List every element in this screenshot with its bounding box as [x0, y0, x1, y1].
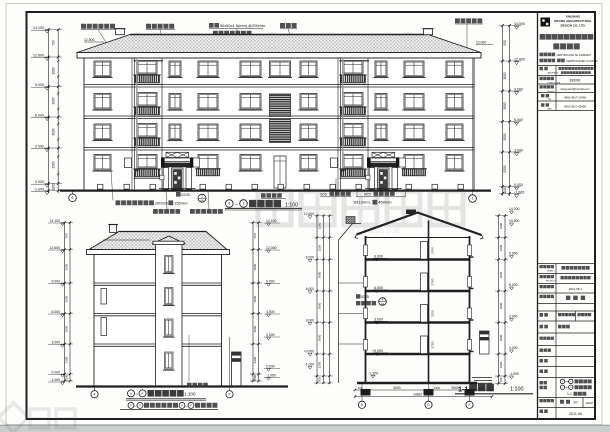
svg-text:PROJECT: PROJECT	[546, 281, 556, 283]
svg-text:9.000: 9.000	[52, 280, 61, 284]
svg-text:9.000: 9.000	[514, 88, 523, 92]
svg-text:3.000: 3.000	[514, 149, 523, 153]
svg-text:1: 1	[472, 197, 474, 201]
svg-text:CERTIFICATE No.A1002627: CERTIFICATE No.A1002627	[557, 53, 592, 57]
svg-text:3000: 3000	[503, 102, 507, 109]
svg-text:c o 1 8 8 . c o m: c o 1 8 8 . c o m	[343, 226, 400, 235]
svg-text:1000: 1000	[64, 374, 68, 381]
svg-text:700: 700	[499, 377, 503, 382]
svg-text:6.000: 6.000	[514, 118, 523, 122]
svg-text:3000: 3000	[503, 72, 507, 79]
svg-text:4.500: 4.500	[266, 310, 275, 314]
svg-text:1000: 1000	[52, 183, 56, 190]
svg-text:~: ~	[134, 404, 136, 408]
svg-text:-1.000: -1.000	[50, 378, 60, 382]
svg-text:2700: 2700	[431, 278, 435, 285]
svg-text:FAX: FAX	[548, 107, 553, 110]
svg-text:2200: 2200	[499, 222, 503, 229]
svg-text:-1.000: -1.000	[266, 374, 276, 378]
svg-text:DESIGN CO. LTD.: DESIGN CO. LTD.	[561, 24, 586, 28]
svg-text:3000: 3000	[52, 97, 56, 104]
svg-text:CERTIFICATED CLASS A: CERTIFICATED CLASS A	[566, 59, 597, 63]
svg-text:12.600: 12.600	[50, 246, 60, 250]
svg-text:2700: 2700	[431, 341, 435, 348]
svg-text:10: 10	[573, 400, 578, 405]
svg-text:12.000: 12.000	[514, 58, 525, 62]
svg-text:12.600: 12.600	[33, 54, 44, 58]
svg-text:3000: 3000	[64, 263, 68, 270]
svg-text:F: F	[469, 403, 471, 407]
svg-text:E-mail: E-mail	[548, 91, 555, 93]
svg-text:1-1: 1-1	[567, 392, 572, 396]
svg-text:-1.000: -1.000	[514, 191, 524, 195]
svg-text:0.000: 0.000	[514, 183, 523, 187]
svg-text:3000: 3000	[64, 295, 68, 302]
svg-text:-1.000: -1.000	[509, 372, 519, 376]
svg-text:0991-4517-65430: 0991-4517-65430	[564, 105, 587, 109]
svg-text:~: ~	[185, 404, 187, 408]
svg-text:2200: 2200	[499, 361, 503, 368]
svg-text:3000: 3000	[253, 263, 257, 270]
svg-text:6000: 6000	[393, 386, 400, 390]
svg-text:3300: 3300	[64, 356, 68, 363]
svg-text:fangyuan2@hotmail.com: fangyuan2@hotmail.com	[561, 87, 590, 91]
svg-text:14.100: 14.100	[50, 219, 60, 223]
svg-text:PLAN: PLAN	[547, 270, 553, 273]
svg-text:2200: 2200	[317, 244, 321, 251]
svg-text:3.000: 3.000	[306, 319, 314, 323]
svg-text:12.800: 12.800	[84, 38, 94, 42]
svg-text:3000: 3000	[253, 295, 257, 302]
svg-text:SIFANG ARCHITECTURAL: SIFANG ARCHITECTURAL	[554, 19, 592, 23]
svg-text:A: A	[139, 403, 141, 407]
svg-text:12.000: 12.000	[266, 246, 276, 250]
svg-text:2200: 2200	[317, 361, 321, 368]
svg-text:830000: 830000	[570, 78, 581, 82]
svg-text:9.000: 9.000	[306, 256, 314, 260]
svg-text:3000: 3000	[52, 128, 56, 135]
svg-text:50x50x1.5(mm),@200mm: 50x50x1.5(mm),@200mm	[220, 23, 265, 28]
svg-text:F: F	[142, 392, 144, 396]
svg-text:3000: 3000	[499, 271, 503, 278]
svg-text:2700: 2700	[431, 310, 435, 317]
svg-text:3.000: 3.000	[266, 333, 275, 337]
svg-text:6.000: 6.000	[509, 283, 518, 287]
svg-text:02J5: 02J5	[181, 192, 190, 197]
svg-text:1:100: 1:100	[510, 387, 524, 393]
svg-text:6.000: 6.000	[52, 310, 61, 314]
svg-text:A: A	[181, 403, 183, 407]
svg-text:ADDRESS: ADDRESS	[548, 72, 559, 75]
svg-text:13.800: 13.800	[509, 219, 519, 223]
svg-text:0.000: 0.000	[266, 365, 275, 369]
svg-text:02J5: 02J5	[361, 295, 369, 299]
svg-text:900: 900	[503, 40, 507, 46]
svg-text:6.000: 6.000	[374, 286, 383, 290]
svg-text:6: 6	[72, 196, 74, 200]
svg-text:700: 700	[64, 233, 68, 238]
svg-text:9.000: 9.000	[374, 255, 383, 259]
svg-text:POST CODE: POST CODE	[548, 82, 561, 84]
svg-text:3000: 3000	[317, 334, 321, 341]
svg-text:+0.000: +0.000	[304, 350, 314, 354]
svg-text:1000: 1000	[503, 186, 507, 193]
svg-text:12.000: 12.000	[476, 41, 486, 45]
svg-text:3000: 3000	[64, 325, 68, 332]
svg-text:64: 64	[201, 199, 204, 203]
svg-text:100mm,: 100mm,	[155, 201, 169, 206]
svg-text:0991-4517-23456: 0991-4517-23456	[564, 96, 587, 100]
svg-text:1: 1	[243, 202, 245, 206]
svg-text:0.000: 0.000	[509, 346, 518, 350]
svg-text:3300: 3300	[253, 356, 257, 363]
svg-text:0.000: 0.000	[52, 371, 61, 375]
svg-text:3.000: 3.000	[35, 145, 44, 149]
svg-text:700: 700	[253, 233, 257, 238]
svg-text:3.000: 3.000	[52, 341, 61, 345]
svg-text:700: 700	[52, 40, 56, 46]
svg-text:3000: 3000	[499, 302, 503, 309]
svg-text:2200: 2200	[499, 244, 503, 251]
svg-text:3000: 3000	[317, 302, 321, 309]
svg-text:150mm: 150mm	[174, 201, 188, 206]
svg-text:0.000: 0.000	[35, 180, 44, 184]
svg-text:3000: 3000	[317, 271, 321, 278]
svg-text:3300: 3300	[503, 165, 507, 172]
svg-text:3.000: 3.000	[374, 318, 383, 322]
svg-text:~: ~	[235, 202, 238, 207]
svg-text:9.000: 9.000	[35, 83, 44, 87]
svg-text:3300: 3300	[52, 161, 56, 168]
svg-text:-1.000: -1.000	[34, 188, 44, 192]
svg-text:6: 6	[228, 202, 230, 206]
svg-text:6.000: 6.000	[306, 287, 314, 291]
svg-text:700: 700	[317, 377, 321, 382]
svg-text:F: F	[229, 392, 231, 396]
svg-text:2700: 2700	[431, 247, 435, 254]
svg-text:3000: 3000	[253, 325, 257, 332]
svg-text:9.000: 9.000	[266, 280, 275, 284]
svg-text:19/22: 19/22	[585, 401, 593, 405]
svg-text:3.000: 3.000	[509, 315, 518, 319]
svg-text:2011-08-1: 2011-08-1	[569, 287, 583, 291]
svg-text:1-1: 1-1	[458, 384, 468, 393]
svg-text:14300: 14300	[413, 392, 422, 396]
svg-text:14.000: 14.000	[514, 22, 525, 26]
svg-text:1000: 1000	[253, 374, 257, 381]
svg-text:1:100: 1:100	[184, 392, 196, 397]
svg-text:2011.06: 2011.06	[569, 412, 582, 416]
svg-text:14.000: 14.000	[509, 207, 519, 211]
svg-text:2400: 2400	[434, 386, 441, 390]
svg-text:12.600: 12.600	[304, 212, 314, 216]
svg-text:6.000: 6.000	[35, 114, 44, 118]
svg-text:-1.000: -1.000	[305, 363, 315, 367]
svg-text:9.000: 9.000	[509, 252, 518, 256]
svg-text:3000: 3000	[52, 67, 56, 74]
svg-text:14.100: 14.100	[33, 26, 44, 30]
svg-text:3000: 3000	[503, 133, 507, 140]
svg-text:+0.000: +0.000	[372, 349, 383, 353]
svg-text:3000: 3000	[499, 334, 503, 341]
svg-text:-1.300: -1.300	[368, 372, 378, 376]
svg-text:XINJIANG: XINJIANG	[566, 14, 581, 18]
